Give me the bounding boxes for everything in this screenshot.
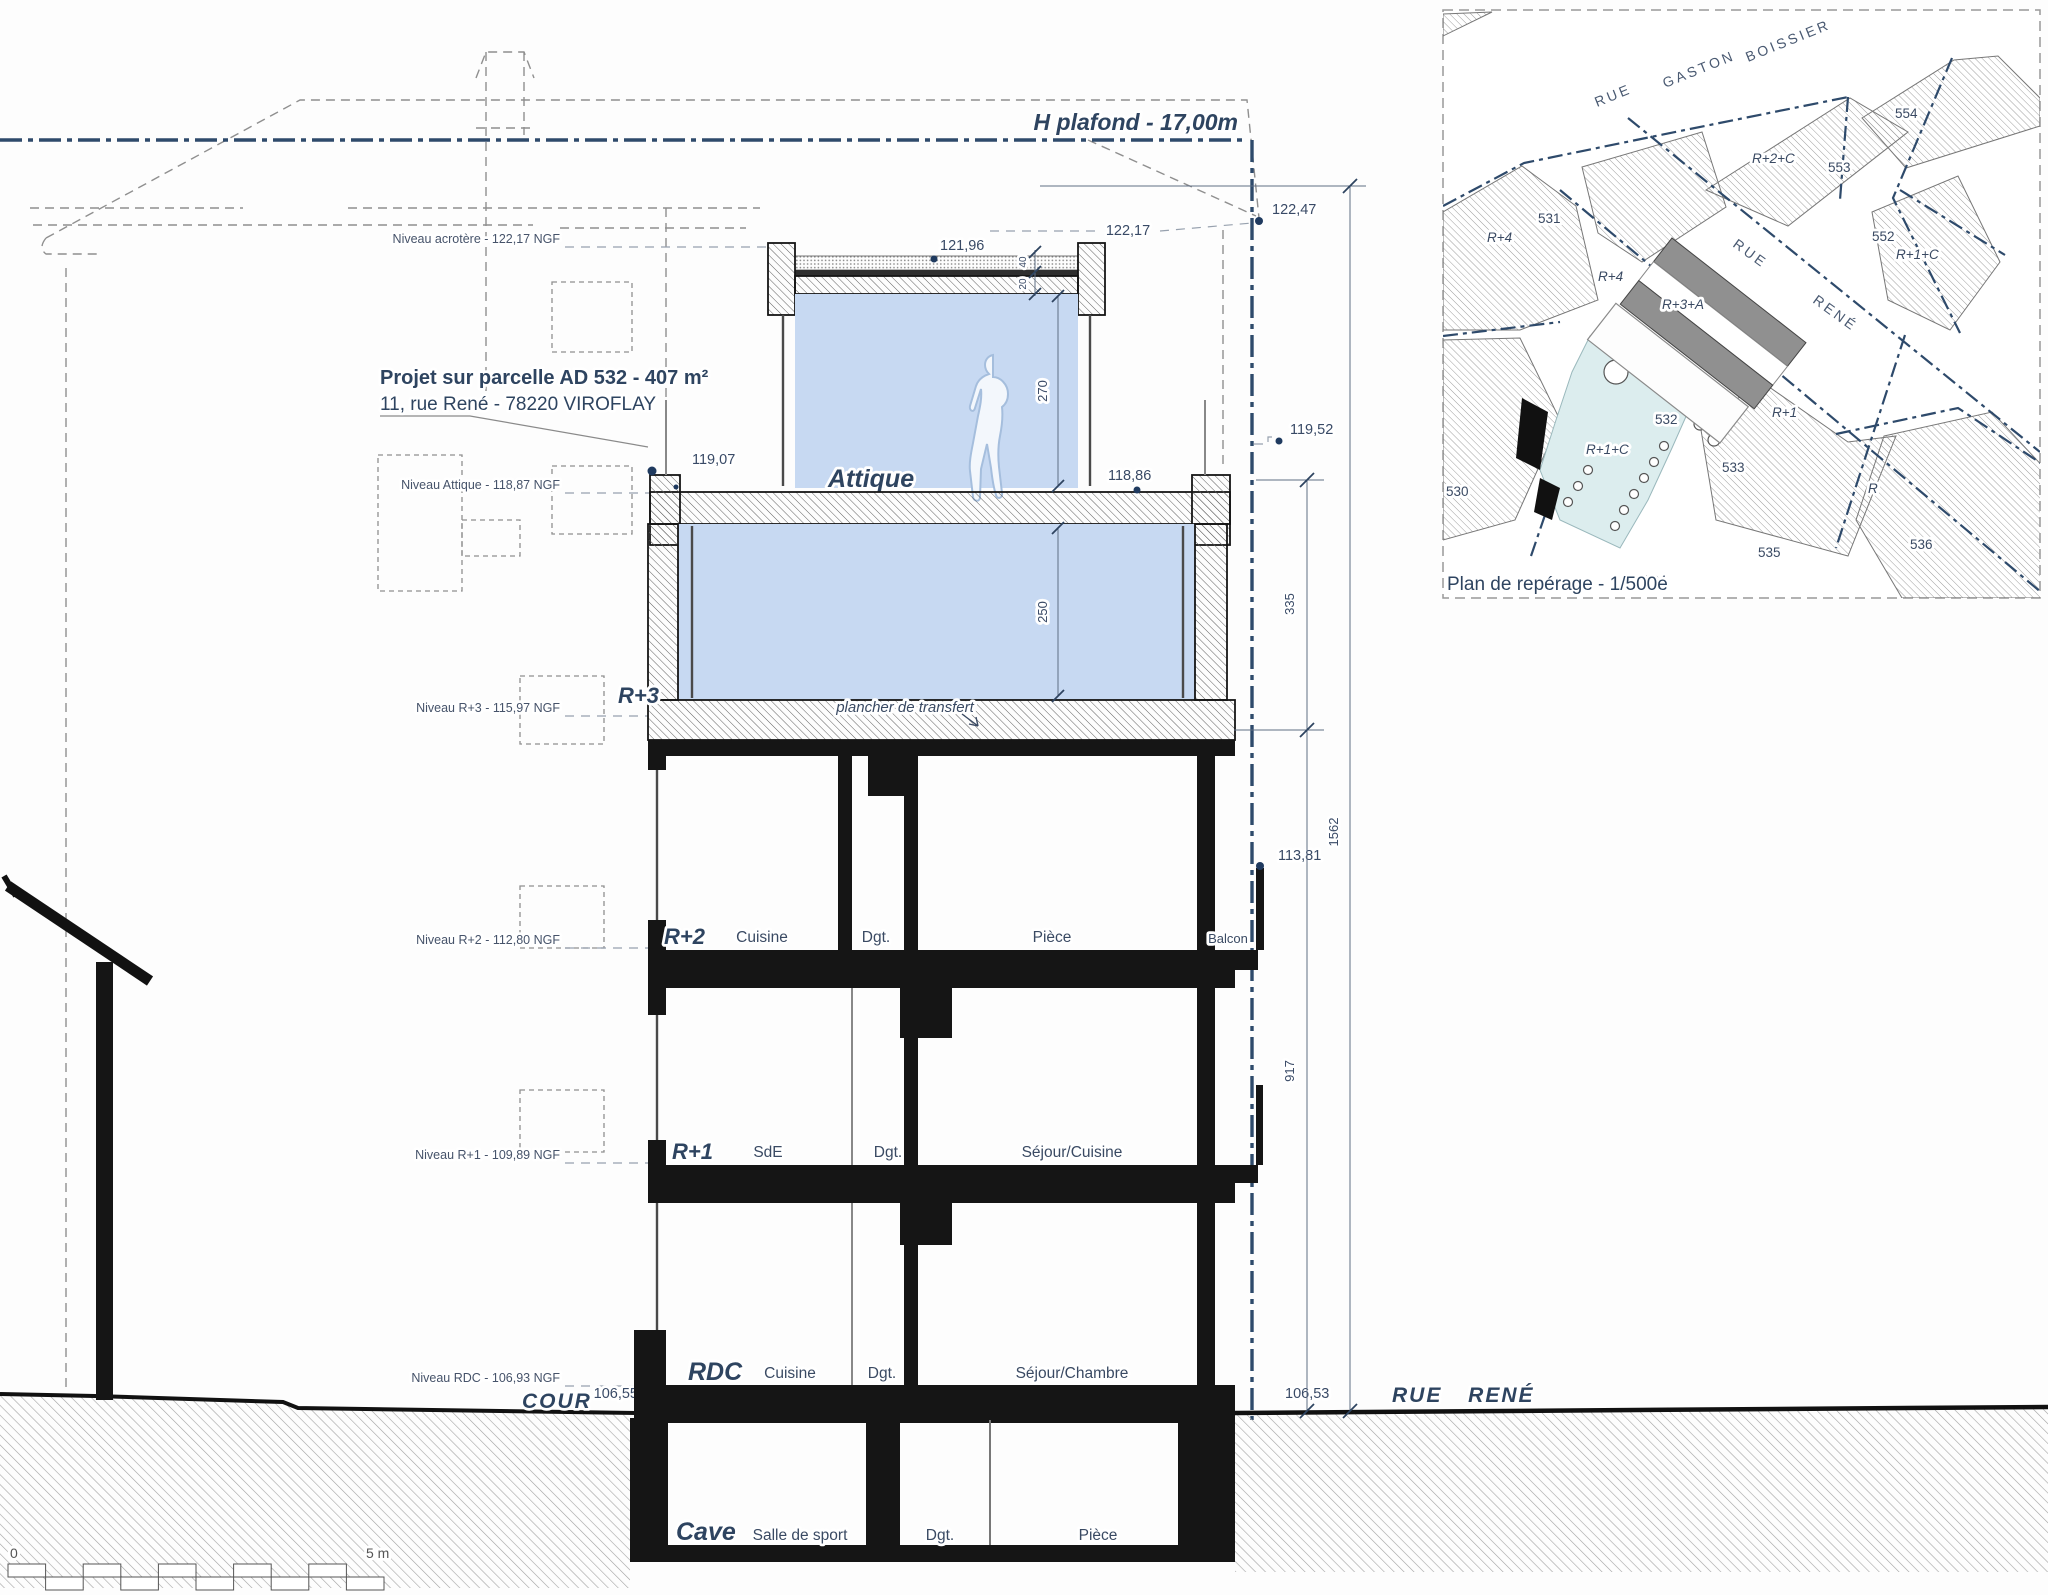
scale-zero: 0	[10, 1545, 18, 1561]
inset-parcel-533: 533	[1722, 460, 1745, 475]
scale-five-m: 5 m	[366, 1545, 389, 1561]
ground-right-hatch	[1235, 1407, 2048, 1572]
level-label-r3: Niveau R+3 - 115,97 NGF	[416, 701, 560, 715]
rdc-room-sejour-chambre: Séjour/Chambre	[1016, 1365, 1129, 1382]
cave-room-salle-sport: Salle de sport	[753, 1527, 848, 1544]
r2-room-balcon: Balcon	[1208, 931, 1248, 946]
dim-roof-20: 20	[1018, 278, 1029, 290]
rdc-story: RDC Cuisine Dgt. Séjour/Chambre	[634, 1203, 1235, 1448]
dim-917: 917	[1282, 1060, 1297, 1082]
dim-1562: 1562	[1326, 818, 1341, 847]
drawing-canvas: H plafond - 17,00m Niveau acrotère - 122…	[0, 0, 2048, 1595]
inset-building-r1c-left: R+1+C	[1586, 442, 1629, 457]
r3-story: R+3 plancher de transfert	[618, 524, 1235, 740]
building-section: Attique R+3 plancher de transfert	[618, 243, 1264, 1562]
level-label-acrotere: Niveau acrotère - 122,17 NGF	[393, 232, 561, 246]
inset-building-r1c-right: R+1+C	[1896, 247, 1939, 262]
r1-story: R+1 SdE Dgt. Séjour/Cuisine	[648, 988, 1263, 1203]
project-note-line1: Projet sur parcelle AD 532 - 407 m²	[380, 367, 709, 389]
dim-attic-270: 270	[1035, 380, 1050, 402]
transfer-slab-note: plancher de transfert	[835, 699, 974, 716]
r2-room-cuisine: Cuisine	[736, 929, 788, 946]
elevation-121-96: 121,96	[940, 238, 984, 254]
inset-building-r2c: R+2+C	[1752, 151, 1795, 166]
level-label-attique: Niveau Attique - 118,87 NGF	[401, 478, 560, 492]
r2-story-label: R+2	[664, 924, 706, 949]
elevation-122-47: 122,47	[1272, 202, 1316, 218]
r1-room-sejour-cuisine: Séjour/Cuisine	[1022, 1144, 1123, 1161]
rue-rene-label: RUE RENÉ	[1392, 1384, 1535, 1407]
cave-room-dgt: Dgt.	[926, 1527, 954, 1544]
ground-left-hatch	[0, 1394, 630, 1588]
inset-parcel-552: 552	[1872, 229, 1895, 244]
rdc-story-label: RDC	[688, 1358, 743, 1386]
inset-parcel-553: 553	[1828, 160, 1851, 175]
neighbor-building	[4, 876, 150, 1400]
inset-parcel-554: 554	[1895, 106, 1918, 121]
elevation-118-86: 118,86	[1108, 468, 1151, 484]
elevation-113-81: 113,81	[1278, 848, 1321, 864]
rdc-room-dgt: Dgt.	[868, 1365, 896, 1382]
chimney-outline	[476, 52, 534, 392]
architectural-drawing-page: H plafond - 17,00m Niveau acrotère - 122…	[0, 0, 2048, 1595]
inset-building-r4-b: R+4	[1598, 269, 1623, 284]
inset-building-r4-a: R+4	[1487, 230, 1512, 245]
inset-parcel-531: 531	[1538, 211, 1561, 226]
inset-building-r3a: R+3+A	[1662, 297, 1704, 312]
inset-parcel-530: 530	[1446, 484, 1469, 499]
attique-label: Attique	[827, 465, 914, 493]
r3-label: R+3	[618, 683, 659, 708]
dim-r3-250: 250	[1035, 601, 1050, 623]
cave-room-piece: Pièce	[1079, 1527, 1118, 1544]
inset-building-r1: R+1	[1772, 405, 1797, 420]
r2-room-dgt: Dgt.	[862, 929, 890, 946]
rdc-room-cuisine: Cuisine	[764, 1365, 816, 1382]
elevation-119-52: 119,52	[1290, 422, 1333, 438]
site-plan-inset: RUE GASTON BOISSIER RUE RENÉ 554 553 R+2…	[1443, 10, 2048, 598]
level-label-r2: Niveau R+2 - 112,80 NGF	[416, 933, 560, 947]
project-note: Projet sur parcelle AD 532 - 407 m² 11, …	[380, 367, 709, 447]
r1-story-label: R+1	[672, 1139, 713, 1164]
r1-room-dgt: Dgt.	[874, 1144, 902, 1161]
elevation-cour: 106,55	[594, 1386, 638, 1402]
level-label-r1: Niveau R+1 - 109,89 NGF	[415, 1148, 560, 1162]
project-note-line2: 11, rue René - 78220 VIROFLAY	[380, 394, 656, 415]
cour-label: COUR	[522, 1390, 592, 1413]
elevation-122-17: 122,17	[1106, 223, 1150, 239]
inset-caption: Plan de repérage - 1/500e	[1447, 574, 1668, 595]
cave-story: Cave Salle de sport Dgt. Pièce	[630, 1418, 1235, 1562]
cave-story-label: Cave	[676, 1518, 736, 1546]
inset-building-r: R	[1868, 481, 1878, 496]
r2-story: R+2 Cuisine Dgt. Pièce Balcon	[648, 740, 1264, 988]
inset-parcel-536: 536	[1910, 537, 1933, 552]
level-label-rdc: Niveau RDC - 106,93 NGF	[411, 1371, 560, 1385]
dim-335: 335	[1282, 593, 1297, 615]
inset-parcel-535: 535	[1758, 545, 1781, 560]
r2-room-piece: Pièce	[1033, 929, 1072, 946]
r1-room-sde: SdE	[753, 1144, 782, 1161]
inset-parcel-532: 532	[1655, 412, 1678, 427]
elevation-119-07: 119,07	[692, 452, 735, 468]
h-plafond-label: H plafond - 17,00m	[1034, 109, 1238, 135]
dim-roof-40: 40	[1018, 256, 1029, 268]
